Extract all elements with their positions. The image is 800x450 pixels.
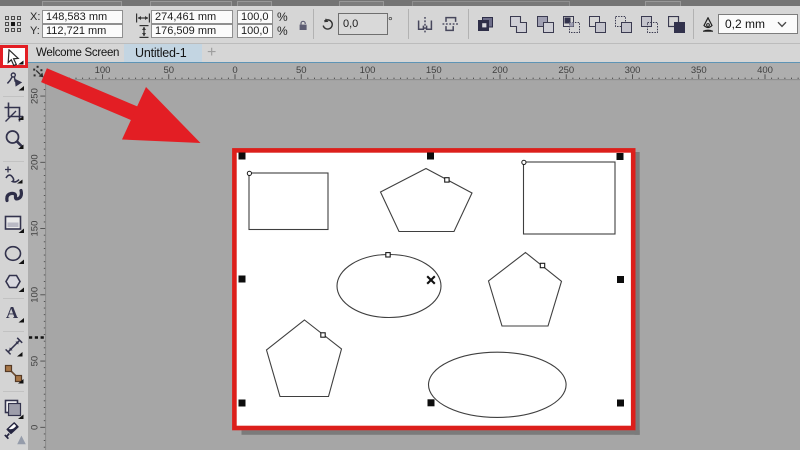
svg-text:250: 250 [558, 65, 574, 76]
svg-text:350: 350 [691, 65, 707, 76]
svg-text:0: 0 [232, 65, 237, 76]
svg-text:100: 100 [30, 287, 41, 303]
svg-text:150: 150 [426, 65, 442, 76]
svg-text:200: 200 [30, 154, 41, 170]
svg-text:200: 200 [492, 65, 508, 76]
svg-text:50: 50 [30, 356, 41, 367]
svg-text:50: 50 [163, 65, 174, 76]
svg-text:250: 250 [30, 88, 41, 104]
svg-text:300: 300 [625, 65, 641, 76]
svg-text:100: 100 [95, 65, 111, 76]
svg-text:A: A [6, 303, 19, 322]
svg-text:150: 150 [30, 221, 41, 237]
svg-text:50: 50 [296, 65, 307, 76]
svg-text:400: 400 [757, 65, 773, 76]
svg-text:0: 0 [30, 425, 41, 430]
svg-text:100: 100 [360, 65, 376, 76]
